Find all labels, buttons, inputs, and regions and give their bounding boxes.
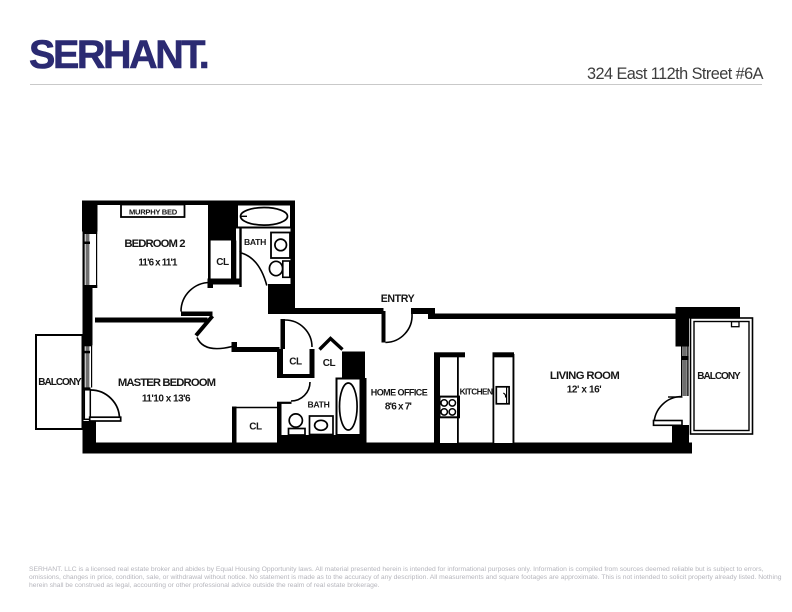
svg-text:CL: CL [289,357,302,368]
svg-text:ENTRY: ENTRY [381,293,415,305]
svg-text:HOME OFFICE: HOME OFFICE [371,388,428,398]
svg-text:CL: CL [216,257,229,268]
svg-text:BALCONY: BALCONY [38,377,82,388]
svg-text:8'6 x 7': 8'6 x 7' [385,402,412,413]
svg-text:KITCHEN: KITCHEN [460,387,493,397]
svg-text:CL: CL [249,422,262,433]
svg-text:MURPHY BED: MURPHY BED [129,208,178,217]
svg-text:11'10 x 13'6: 11'10 x 13'6 [142,394,191,405]
svg-text:BALCONY: BALCONY [697,371,741,382]
svg-text:CL: CL [323,358,336,369]
svg-text:11'6 x 11'1: 11'6 x 11'1 [138,258,178,269]
svg-text:BATH: BATH [307,400,329,410]
svg-text:LIVING ROOM: LIVING ROOM [550,370,620,382]
svg-text:MASTER BEDROOM: MASTER BEDROOM [118,377,216,389]
svg-text:BEDROOM 2: BEDROOM 2 [124,238,185,250]
svg-text:BATH: BATH [244,237,266,247]
svg-text:12' x 16': 12' x 16' [567,385,602,396]
